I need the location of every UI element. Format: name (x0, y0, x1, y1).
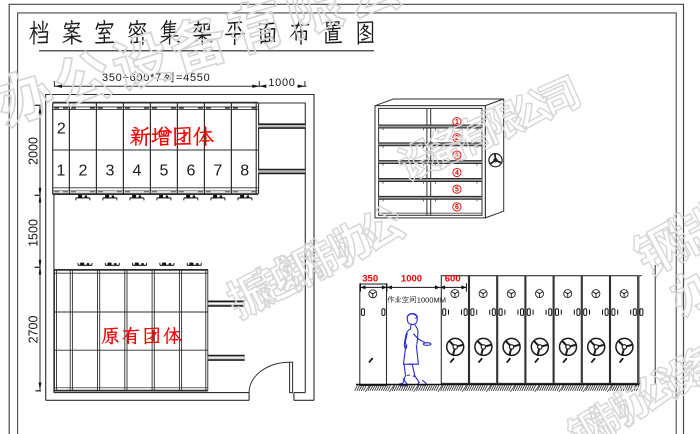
svg-text:6: 6 (455, 204, 459, 211)
svg-text:1: 1 (57, 163, 66, 180)
svg-text:2700: 2700 (27, 316, 41, 344)
svg-text:1500: 1500 (27, 219, 41, 247)
svg-text:1000: 1000 (268, 77, 295, 89)
svg-text:2000: 2000 (27, 137, 41, 165)
svg-text:350: 350 (362, 274, 378, 285)
svg-text:2: 2 (78, 163, 87, 180)
svg-text:6: 6 (186, 163, 195, 180)
svg-text:5: 5 (455, 187, 459, 194)
svg-text:4: 4 (455, 170, 459, 177)
svg-text:1000: 1000 (401, 274, 422, 285)
svg-text:3: 3 (105, 163, 114, 180)
svg-text:=4550: =4550 (176, 72, 210, 84)
svg-text:2: 2 (57, 121, 66, 138)
svg-text:600: 600 (445, 274, 461, 285)
svg-text:4: 4 (132, 163, 141, 180)
svg-text:1000MM: 1000MM (417, 295, 446, 304)
svg-text:1: 1 (455, 119, 459, 126)
svg-text:5: 5 (159, 163, 168, 180)
svg-text:7: 7 (213, 163, 222, 180)
svg-text:8: 8 (240, 163, 249, 180)
